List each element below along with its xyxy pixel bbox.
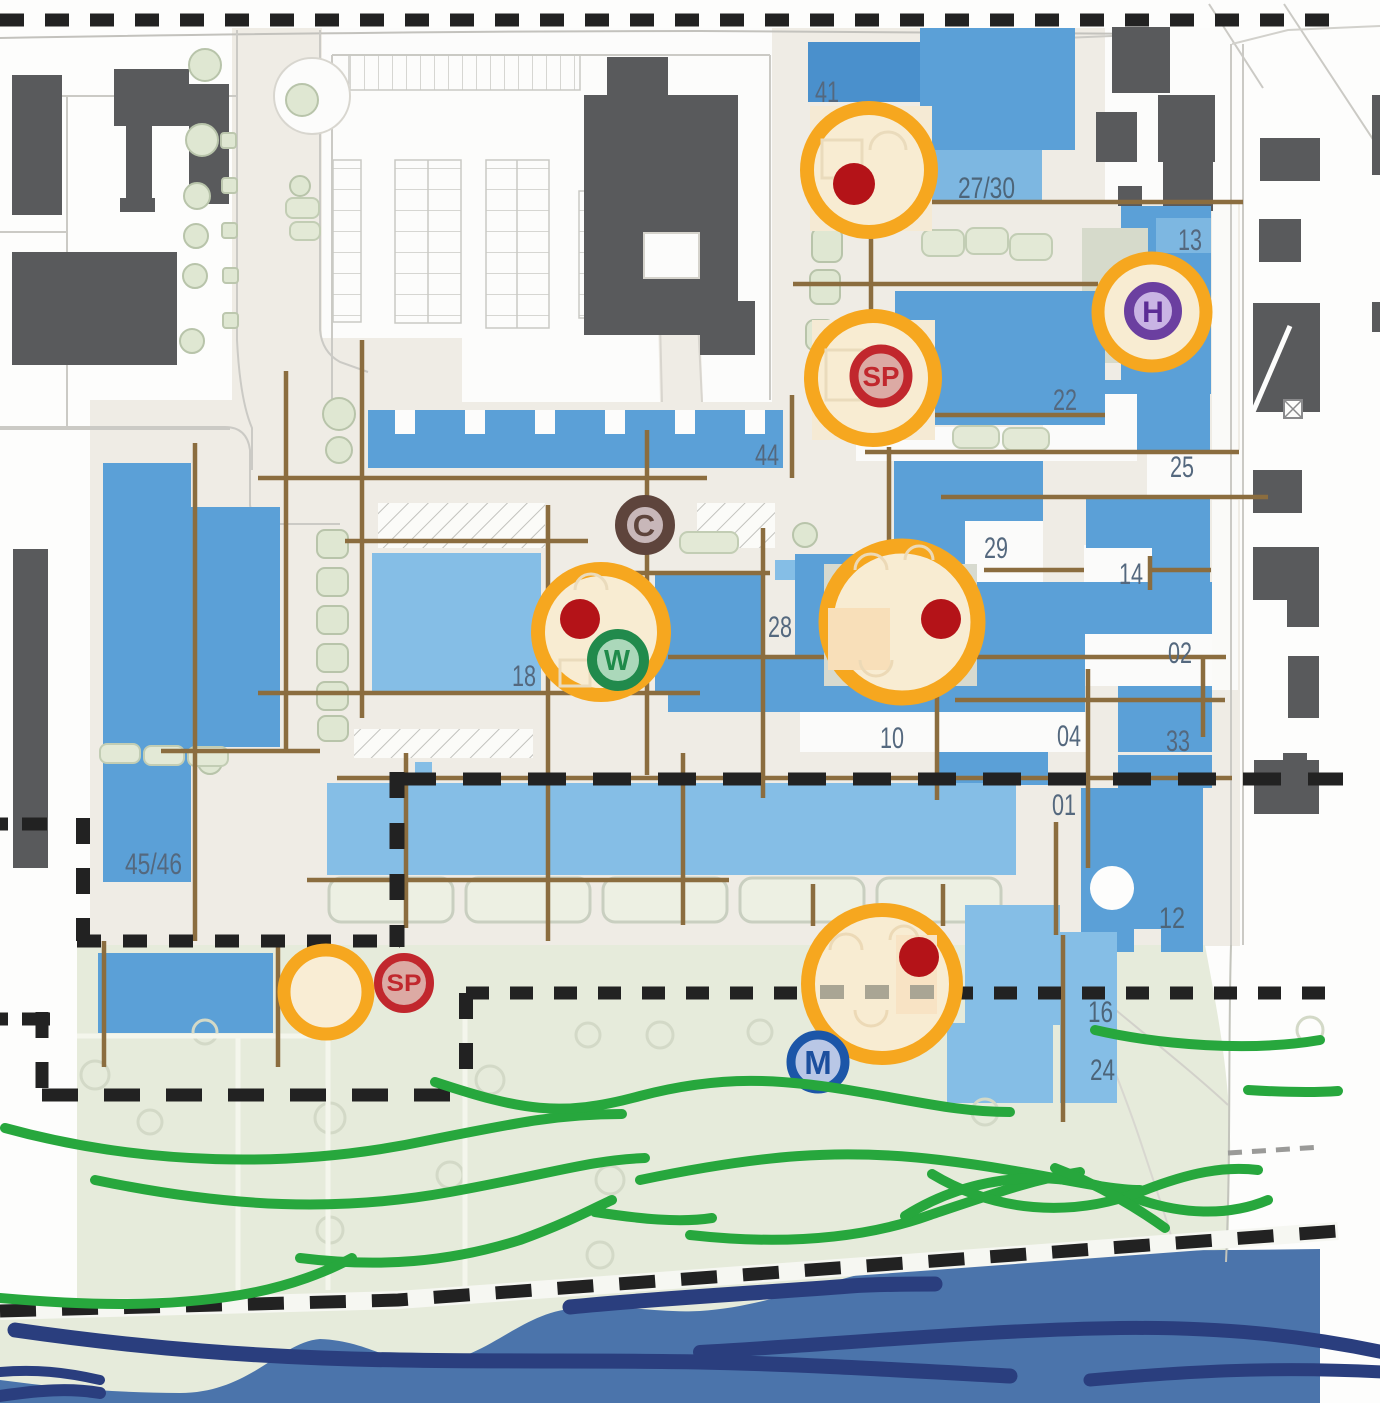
svg-text:01: 01 [1052, 789, 1076, 822]
svg-text:13: 13 [1178, 224, 1202, 257]
svg-text:C: C [633, 508, 655, 543]
svg-text:22: 22 [1053, 384, 1077, 417]
svg-text:W: W [604, 645, 631, 677]
svg-text:44: 44 [755, 439, 779, 472]
svg-text:SP: SP [387, 970, 422, 997]
svg-text:24: 24 [1090, 1054, 1115, 1087]
svg-text:27/30: 27/30 [958, 172, 1015, 205]
svg-text:45/46: 45/46 [125, 848, 182, 881]
svg-text:25: 25 [1170, 451, 1194, 484]
svg-text:10: 10 [880, 722, 904, 755]
svg-text:33: 33 [1166, 725, 1190, 758]
svg-text:02: 02 [1168, 637, 1192, 670]
svg-text:29: 29 [984, 532, 1008, 565]
svg-text:H: H [1142, 296, 1164, 329]
svg-text:04: 04 [1057, 720, 1081, 753]
svg-text:SP: SP [863, 361, 900, 392]
svg-text:16: 16 [1088, 996, 1113, 1029]
svg-text:28: 28 [768, 611, 792, 644]
svg-text:14: 14 [1119, 558, 1143, 591]
svg-text:12: 12 [1159, 902, 1185, 935]
svg-text:18: 18 [512, 660, 536, 693]
svg-text:41: 41 [815, 76, 839, 109]
svg-text:M: M [804, 1044, 832, 1081]
